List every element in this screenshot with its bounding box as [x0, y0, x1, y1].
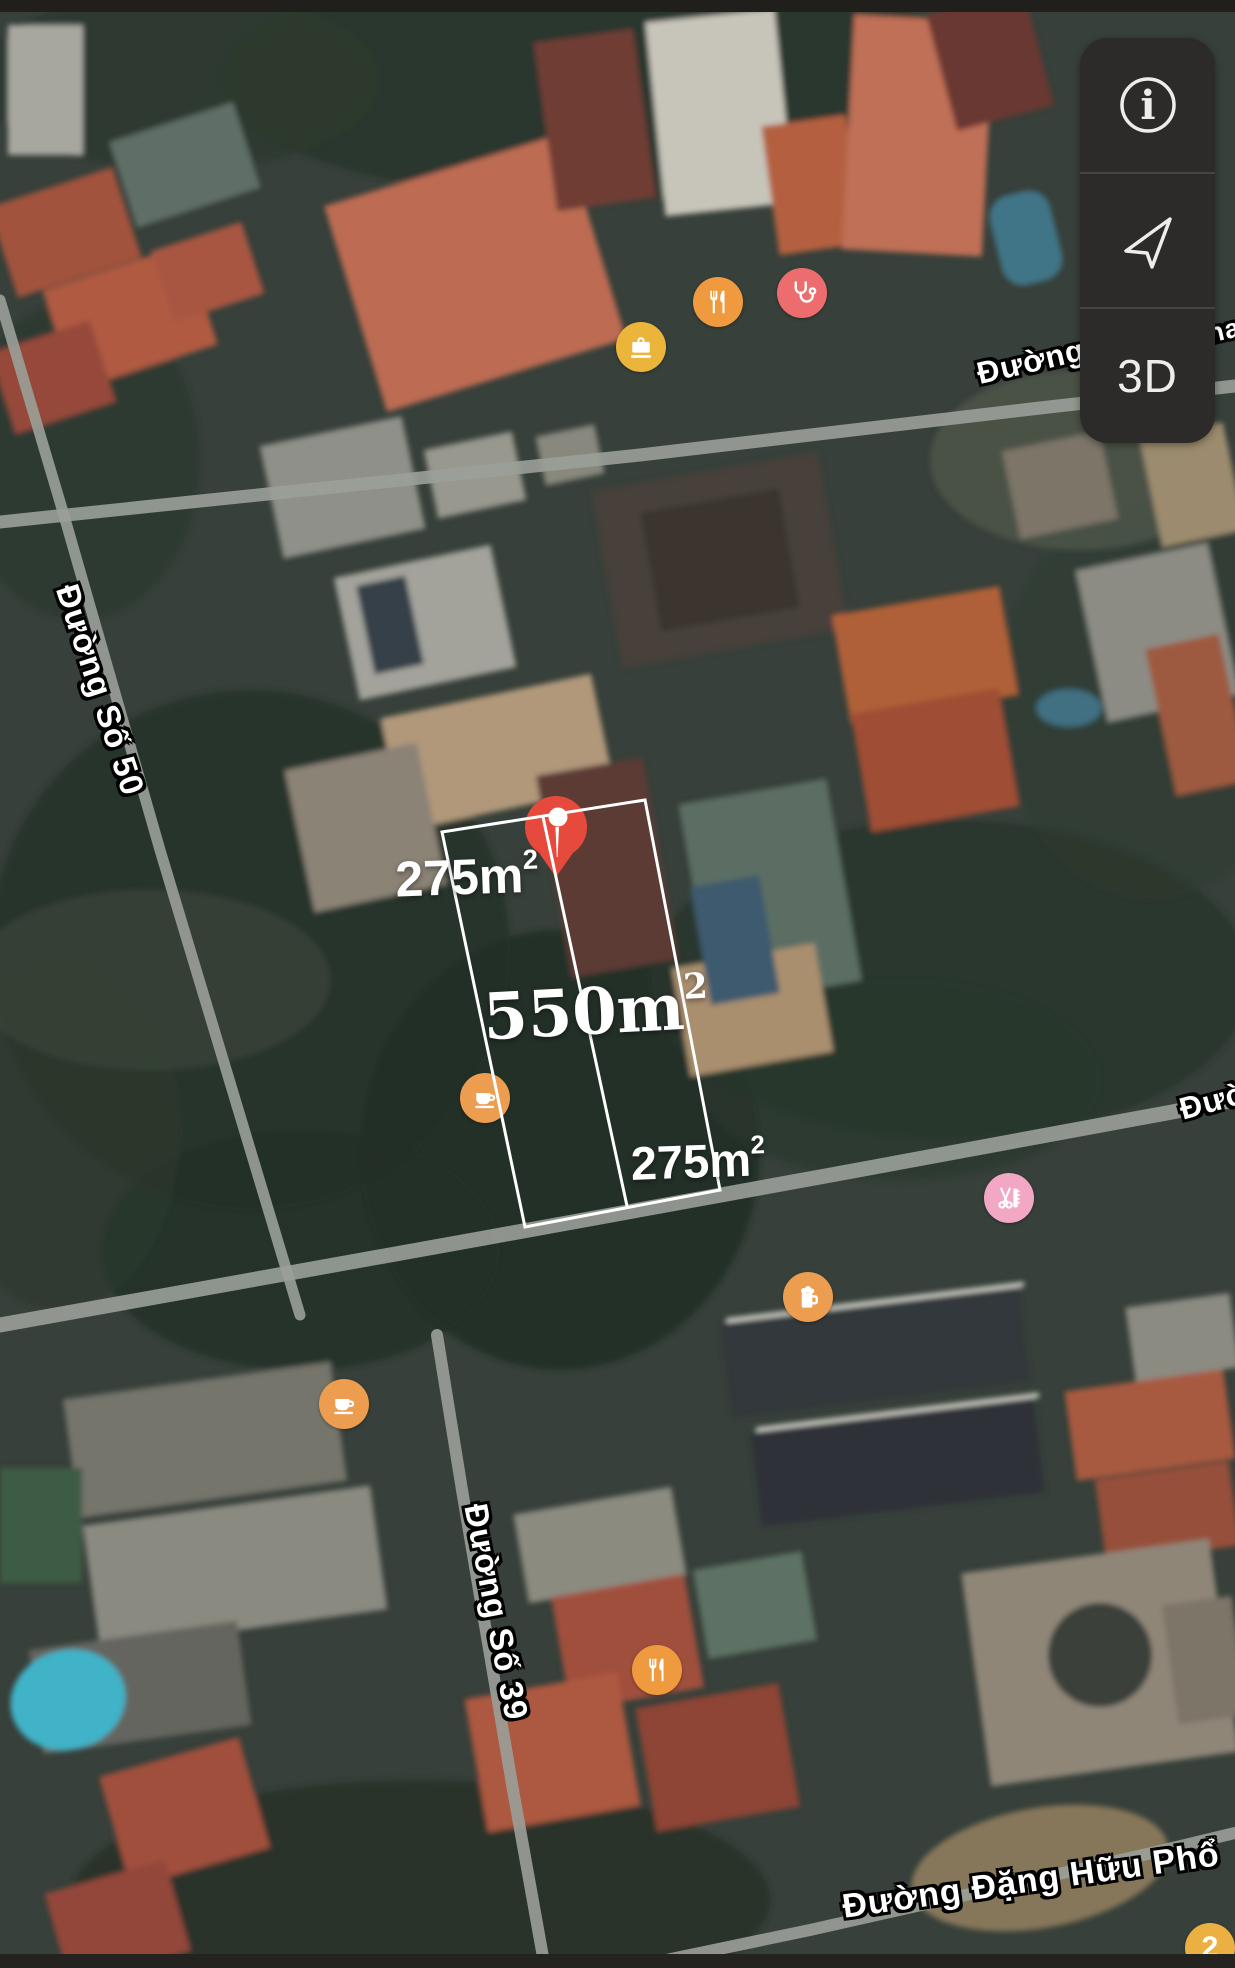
- 3d-button-label: 3D: [1117, 349, 1178, 403]
- 3d-button[interactable]: 3D: [1080, 309, 1215, 443]
- location-arrow-icon: [1116, 209, 1180, 273]
- info-icon: i: [1117, 74, 1179, 136]
- map-controls-panel: i 3D: [1080, 38, 1215, 443]
- bottom-bar: [0, 1954, 1235, 1968]
- area-bottom-label: 275m2: [630, 1131, 766, 1191]
- map-canvas[interactable]: ĐườngnaĐường Số 50ĐườĐường Số 39Đường Đặ…: [0, 0, 1235, 1968]
- area-top-label: 275m2: [394, 846, 539, 909]
- area-total-label: 550m2: [481, 969, 710, 1056]
- info-button[interactable]: i: [1080, 38, 1215, 172]
- top-bar: [0, 0, 1235, 12]
- locate-button[interactable]: [1080, 174, 1215, 308]
- svg-text:i: i: [1140, 82, 1155, 129]
